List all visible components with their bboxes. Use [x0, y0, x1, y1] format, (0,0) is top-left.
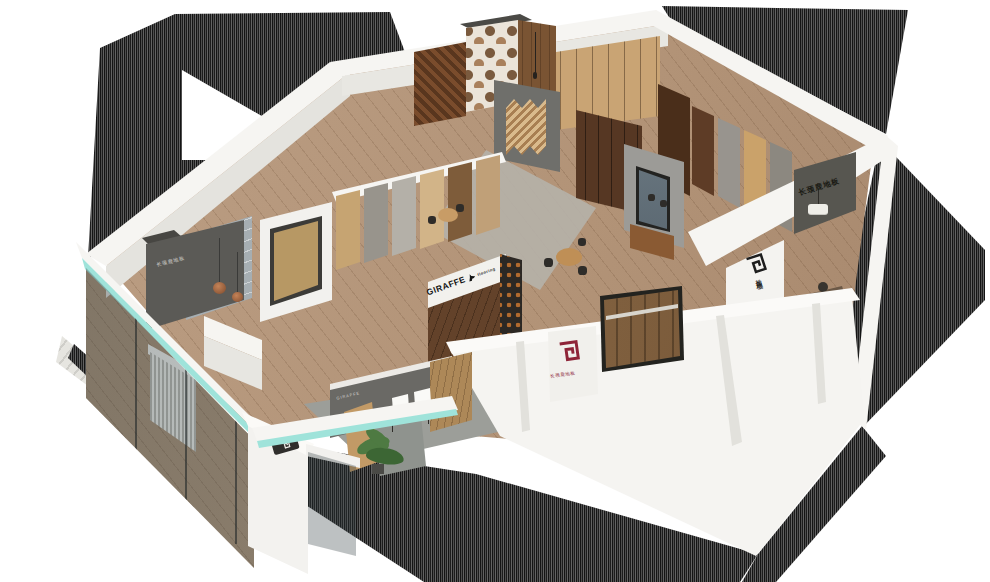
chair [544, 258, 553, 267]
white-pendant-lamp [808, 204, 828, 214]
chair [428, 216, 436, 224]
chair [578, 238, 586, 246]
brand-logo-red-icon [557, 339, 582, 364]
round-table [556, 248, 582, 266]
bar-stool [648, 194, 655, 201]
pendant-cord [219, 238, 220, 284]
glass-mullion [135, 316, 137, 452]
bar-stool [660, 200, 667, 207]
copper-pendant-lamp [213, 282, 226, 294]
chair [578, 266, 587, 275]
pendant-tip [533, 72, 537, 79]
pendant-cord [535, 32, 536, 74]
glass-mullion [235, 414, 237, 544]
render-viewport[interactable]: 长颈鹿地板 GIRAFFE flooring [0, 0, 990, 582]
plant-pot [372, 464, 384, 474]
chair [456, 204, 464, 212]
office-chair [818, 282, 828, 292]
glass-mullion [185, 366, 187, 506]
round-table [438, 208, 458, 222]
pendant-cord [237, 252, 238, 294]
copper-pendant-lamp [232, 292, 243, 302]
